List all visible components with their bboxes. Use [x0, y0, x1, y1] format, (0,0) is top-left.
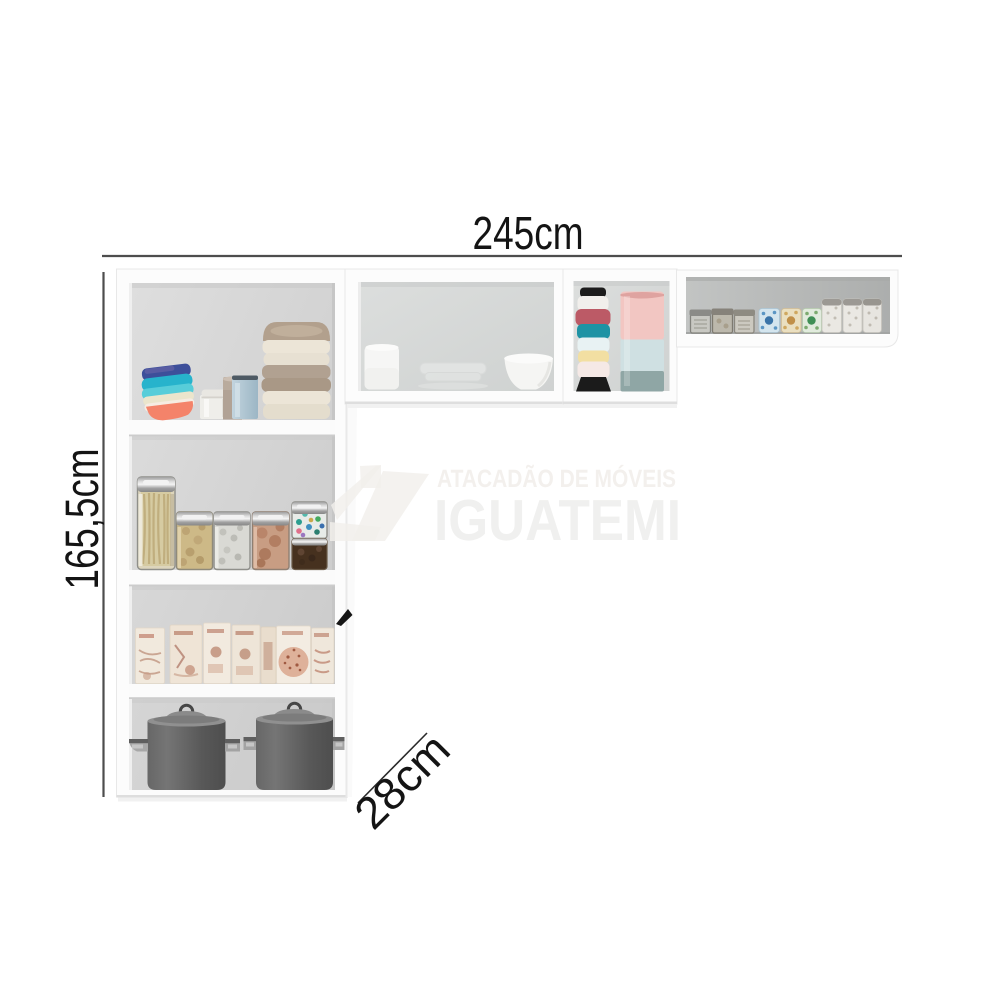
svg-text:IGUATEMI: IGUATEMI: [434, 488, 681, 553]
svg-text:165,5cm: 165,5cm: [55, 449, 108, 590]
svg-text:245cm: 245cm: [473, 207, 584, 259]
